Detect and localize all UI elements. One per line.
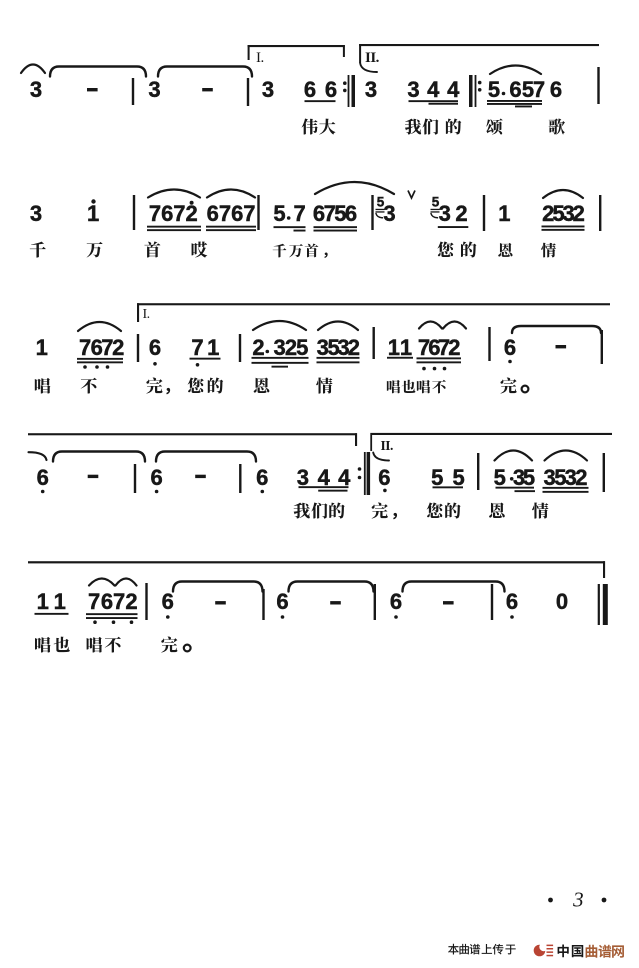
svg-text:6: 6 [378,465,390,490]
svg-text:0: 0 [556,589,568,614]
svg-text:3: 3 [30,201,42,226]
svg-text:6: 6 [504,335,516,360]
svg-text:7: 7 [293,201,305,226]
svg-text:7: 7 [113,589,125,614]
svg-text:2: 2 [575,465,587,490]
svg-text:1: 1 [388,335,400,360]
svg-text:6: 6 [325,77,337,102]
svg-text:4: 4 [427,77,440,102]
svg-text:1: 1 [54,589,66,614]
svg-text:1: 1 [36,335,48,360]
svg-text:6: 6 [509,77,521,102]
svg-text:6: 6 [304,77,316,102]
svg-text:3: 3 [365,77,377,102]
svg-text:1: 1 [400,335,412,360]
svg-text:3: 3 [439,201,451,226]
svg-text:6: 6 [345,201,357,226]
svg-text:1: 1 [87,201,99,226]
svg-text:I.: I. [256,50,264,66]
svg-text:6: 6 [231,201,243,226]
svg-text:5: 5 [494,465,506,490]
svg-text:5: 5 [296,335,308,360]
svg-text:7: 7 [149,201,161,226]
svg-text:7: 7 [79,335,91,360]
svg-text:7: 7 [88,589,100,614]
svg-text:3: 3 [30,77,42,102]
svg-text:5: 5 [452,465,464,490]
svg-text:6: 6 [150,465,162,490]
svg-text:5: 5 [273,201,285,226]
svg-text:2: 2 [348,335,360,360]
svg-text:7: 7 [173,201,185,226]
svg-text:6: 6 [506,589,518,614]
svg-text:3: 3 [383,201,395,226]
svg-text:7: 7 [243,201,255,226]
svg-text:3: 3 [273,335,285,360]
svg-text:6: 6 [207,201,219,226]
svg-text:6: 6 [161,201,173,226]
svg-text:7: 7 [191,335,203,360]
svg-text:1: 1 [37,589,49,614]
svg-text:6: 6 [149,335,161,360]
svg-text:1: 1 [498,201,510,226]
svg-text:II.: II. [365,50,380,66]
svg-text:6: 6 [101,589,113,614]
svg-text:6: 6 [37,465,49,490]
svg-text:6: 6 [390,589,402,614]
svg-text:6: 6 [276,589,288,614]
svg-text:2: 2 [573,201,585,226]
svg-text:5: 5 [431,465,443,490]
svg-text:2: 2 [125,589,137,614]
svg-text:1: 1 [207,335,219,360]
svg-text:3: 3 [148,77,160,102]
svg-text:5: 5 [488,77,500,102]
svg-text:3: 3 [262,77,274,102]
svg-text:7: 7 [533,77,545,102]
svg-text:3: 3 [572,888,584,912]
svg-text:6: 6 [550,77,562,102]
svg-text:7: 7 [219,201,231,226]
svg-text:II.: II. [381,438,394,453]
svg-text:2: 2 [448,335,460,360]
svg-text:6: 6 [162,589,174,614]
svg-text:I.: I. [143,307,150,322]
svg-text:2: 2 [455,201,467,226]
svg-text:3: 3 [407,77,419,102]
svg-text:2: 2 [112,335,124,360]
svg-text:6: 6 [256,465,268,490]
svg-text:2: 2 [252,335,264,360]
svg-text:4: 4 [447,77,460,102]
svg-text:5: 5 [523,465,535,490]
